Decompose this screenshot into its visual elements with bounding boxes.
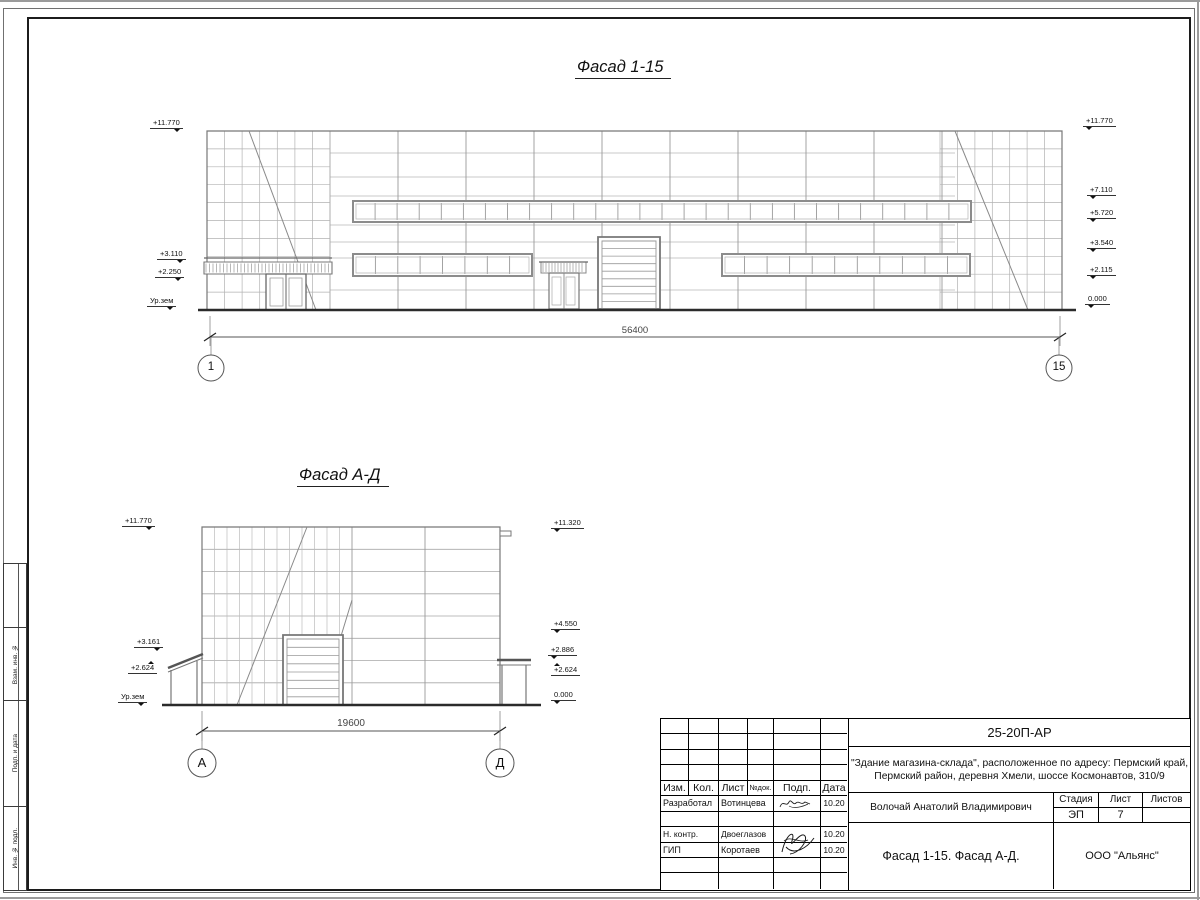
elevation-mark: +2.624	[128, 661, 157, 674]
elevation-mark: +11.770	[150, 119, 183, 132]
axis-bubble-1: 1	[198, 361, 224, 373]
col-podp: Подп.	[774, 781, 821, 796]
elevation-mark: +2.115	[1087, 266, 1116, 279]
elevation-value: +3.161	[134, 638, 163, 648]
date-cell: 10.20	[821, 843, 847, 858]
col-data: Дата	[821, 781, 847, 796]
stage-header-row: Стадия Лист Листов	[1054, 793, 1190, 808]
elevation-triangle-icon	[1086, 127, 1092, 130]
elevation-mark: +2.886	[548, 646, 577, 659]
elevation-mark: +11.770	[1083, 117, 1116, 130]
elevation-mark-ground: Ур.зем	[118, 693, 147, 706]
elevation-mark: +3.540	[1087, 239, 1116, 252]
elevation-mark-ground: Ур.зем	[147, 297, 176, 310]
elevation-value: 0.000	[551, 691, 576, 701]
col-list: Лист	[719, 781, 748, 796]
elevation-value: +3.110	[157, 250, 186, 260]
person-name: Двоеглазов	[719, 827, 774, 842]
sheets-value	[1143, 808, 1190, 824]
facade2-title-wrap: Фасад А-Д	[297, 466, 389, 487]
sheets-label: Листов	[1143, 793, 1190, 808]
elevation-triangle-icon	[154, 648, 160, 651]
elevation-mark: 0.000	[551, 691, 576, 704]
sheet-number: 7	[1099, 808, 1143, 824]
elevation-mark: 0.000	[1085, 295, 1110, 308]
stage-value: ЭП	[1054, 808, 1099, 824]
elevation-triangle-icon	[554, 701, 560, 704]
project-address: "Здание магазина-склада", расположенное …	[849, 747, 1190, 793]
title-block-left-grid: Изм. Кол. Лист №док. Подп. Дата Разработ…	[661, 719, 849, 890]
elevation-value: +2.886	[548, 646, 577, 656]
facade1-dimension: 56400	[595, 325, 675, 336]
axis-bubble-15: 15	[1046, 361, 1072, 373]
axis-bubble-d: Д	[486, 755, 514, 770]
sheet-title: Фасад 1-15. Фасад А-Д.	[849, 823, 1054, 889]
elevation-triangle-icon	[554, 529, 560, 532]
elevation-mark: +7.110	[1087, 186, 1116, 199]
elevation-triangle-icon	[551, 656, 557, 659]
elevation-value: +2.115	[1087, 266, 1116, 276]
signature-icon-large	[774, 827, 821, 858]
elevation-mark: +3.110	[157, 250, 186, 263]
doc-number: 25-20П-АР	[849, 719, 1190, 747]
col-kol: Кол.	[689, 781, 719, 796]
person-name: Коротаев	[719, 843, 774, 858]
col-dok: №док.	[748, 781, 774, 796]
role-label: ГИП	[661, 843, 719, 858]
sheet-label: Лист	[1099, 793, 1143, 808]
date-cell: 10.20	[821, 796, 847, 811]
elevation-triangle-icon	[1088, 305, 1094, 308]
elevation-value: +11.320	[551, 519, 584, 529]
title-block-header-row: Изм. Кол. Лист №док. Подп. Дата	[661, 781, 848, 796]
stage-label: Стадия	[1054, 793, 1099, 808]
elevation-value: +2.250	[155, 268, 184, 278]
role-label: Н. контр.	[661, 827, 719, 842]
elevation-value: Ур.зем	[147, 297, 176, 307]
elevation-triangle-icon	[1090, 196, 1096, 199]
elevation-triangle-icon	[1090, 249, 1096, 252]
elevation-triangle-icon	[138, 703, 144, 706]
signature-icon	[775, 797, 819, 810]
drawing-sheet: Взам. инв. № Подп. и дата Инв. № подл. Ф…	[0, 0, 1200, 900]
project-address-line1: "Здание магазина-склада", расположенное …	[851, 757, 1188, 770]
elevation-triangle-icon	[167, 307, 173, 310]
elevation-mark: +4.550	[551, 620, 580, 633]
elevation-mark: +5.720	[1087, 209, 1116, 222]
role-label: Разработал	[661, 796, 719, 811]
elevation-triangle-icon	[174, 129, 180, 132]
elevation-triangle-icon	[175, 278, 181, 281]
facade1-title: Фасад 1-15	[575, 58, 671, 79]
elevation-value: +3.540	[1087, 239, 1116, 249]
col-izm: Изм.	[661, 781, 689, 796]
elevation-value: +11.770	[122, 517, 155, 527]
elevation-value: +11.770	[150, 119, 183, 129]
elevation-mark: +2.250	[155, 268, 184, 281]
elevation-value: +11.770	[1083, 117, 1116, 127]
person-name: Вотинцева	[719, 796, 774, 811]
elevation-value: Ур.зем	[118, 693, 147, 703]
elevation-triangle-icon	[146, 527, 152, 530]
elevation-mark: +11.770	[122, 517, 155, 530]
stage-value-row: ЭП 7	[1054, 808, 1190, 824]
elevation-mark: +2.624	[551, 663, 580, 676]
project-address-line2: Пермский район, деревня Хмели, шоссе Кос…	[874, 770, 1164, 783]
company-name: ООО "Альянс"	[1054, 823, 1190, 889]
axis-bubble-a: А	[188, 755, 216, 770]
facade2-dimension: 19600	[311, 718, 391, 729]
elevation-value: 0.000	[1085, 295, 1110, 305]
elevation-triangle-icon	[177, 260, 183, 263]
elevation-value: +4.550	[551, 620, 580, 630]
date-cell: 10.20	[821, 827, 847, 842]
elevation-value: +2.624	[128, 664, 157, 674]
signature-cell	[774, 796, 821, 811]
elevation-triangle-icon	[554, 630, 560, 633]
elevation-mark: +3.161	[134, 638, 163, 651]
elevation-value: +7.110	[1087, 186, 1116, 196]
elevation-value: +2.624	[551, 666, 580, 676]
facade1-title-wrap: Фасад 1-15	[575, 58, 671, 79]
title-block-row-developer: Разработал Вотинцева 10.20	[661, 796, 848, 811]
chief-name: Волочай Анатолий Владимирович	[849, 793, 1054, 823]
elevation-mark: +11.320	[551, 519, 584, 532]
elevation-value: +5.720	[1087, 209, 1116, 219]
elevation-triangle-icon	[1090, 219, 1096, 222]
title-block: Изм. Кол. Лист №док. Подп. Дата Разработ…	[660, 718, 1191, 891]
facade2-title: Фасад А-Д	[297, 466, 389, 487]
elevation-triangle-icon	[1090, 276, 1096, 279]
